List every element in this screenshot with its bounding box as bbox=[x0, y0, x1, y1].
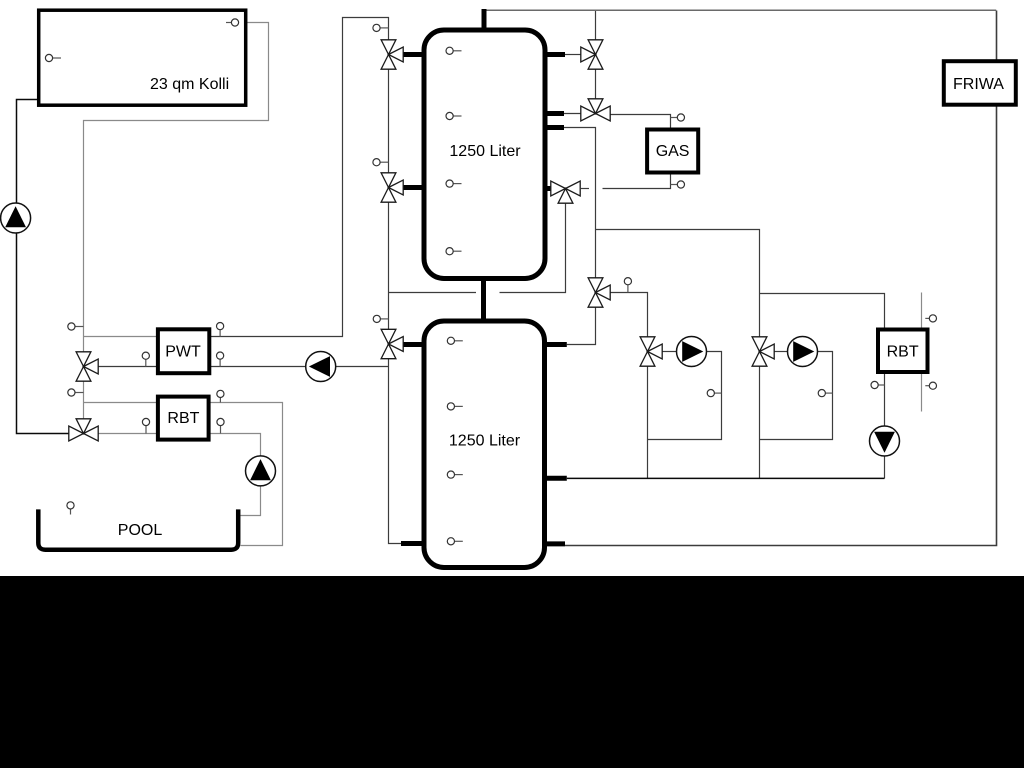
svg-text:POOL: POOL bbox=[118, 522, 163, 539]
svg-text:23 qm Kolli: 23 qm Kolli bbox=[150, 76, 229, 93]
svg-text:1250 Liter: 1250 Liter bbox=[449, 433, 521, 450]
svg-text:FRIWA: FRIWA bbox=[953, 76, 1004, 93]
svg-text:RBT: RBT bbox=[167, 410, 199, 427]
svg-text:PWT: PWT bbox=[165, 344, 201, 361]
svg-text:GAS: GAS bbox=[656, 143, 690, 160]
svg-text:RBT: RBT bbox=[887, 343, 919, 360]
svg-text:1250 Liter: 1250 Liter bbox=[449, 143, 521, 160]
